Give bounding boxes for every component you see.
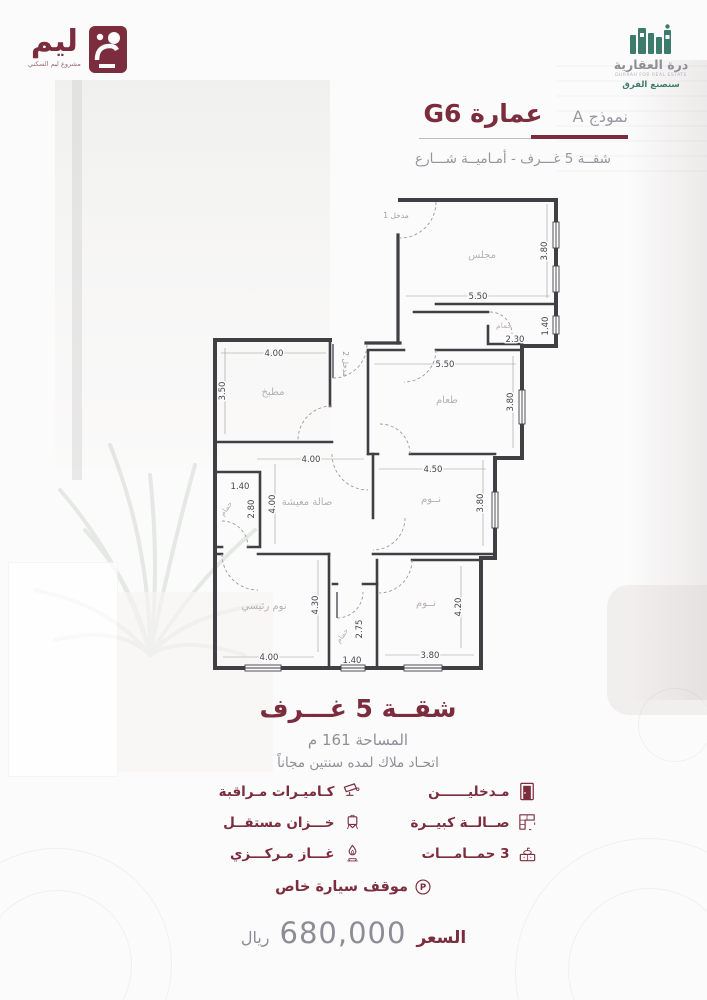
gas-icon (342, 843, 363, 864)
windows (245, 222, 559, 671)
durrah-logo-icon (628, 24, 674, 54)
sofa-icon (517, 812, 538, 833)
dim-living-w: 4.00 (302, 455, 321, 465)
entrance-2-label: مدخل 2 (341, 351, 350, 376)
dim-bed-mid-w: 4.50 (424, 465, 443, 475)
room-label-bath-top: حمام (496, 321, 512, 330)
price-label: السعر (416, 928, 466, 948)
building-title: عمارة G6 (424, 99, 543, 128)
door-leaves (333, 344, 337, 618)
dim-majlis-w: 5.50 (469, 292, 488, 302)
price-currency: ريال (241, 928, 270, 947)
camera-icon (342, 781, 363, 802)
feature-label: صــالــة كبيــرة (411, 815, 510, 831)
exterior-walls (215, 200, 556, 668)
area-text: المساحة 161 م (158, 731, 558, 749)
room-label-bath-bottom: حمام (334, 626, 351, 644)
feature-label: كـاميـرات مـراقبة (219, 784, 335, 800)
background-planter (8, 562, 118, 777)
room-label-bed-mid: نــوم (421, 494, 441, 505)
dimension-lines (221, 204, 550, 657)
floor-plan: 5.50 3.80 2.30 1.40 4.00 3.50 5.50 3.80 … (190, 192, 562, 678)
durrah-brand-name-en: DURRAH FOR REAL ESTATE (615, 73, 687, 78)
room-label-bath-left: حمام (218, 499, 235, 517)
room-label-kitchen: مطبخ (261, 387, 284, 398)
sink-icon (517, 843, 538, 864)
model-label: نموذج A (573, 107, 628, 126)
dim-master-w: 4.00 (260, 653, 279, 663)
feature-label: 3 حمــامـــات (421, 846, 509, 862)
dim-bath-bottom-w: 1.40 (343, 656, 362, 666)
feature-gas: غـــاز مـركـــزي (173, 843, 363, 864)
apartment-subtitle: شقــة 5 غـــرف - أمـاميــة شـــارع (398, 151, 628, 167)
durrah-brand-slogan: سنصنع الفرق (622, 80, 680, 90)
dim-bath-top-w: 2.30 (506, 335, 525, 345)
parking-symbol: P (420, 883, 426, 893)
apartment-title: شقــة 5 غـــرف (158, 694, 558, 723)
poster-page: ليم مشروع ليم السكني درة العقارية (0, 0, 707, 1000)
feature-bathrooms: 3 حمــامـــات (373, 843, 538, 864)
dim-kitchen-w: 4.00 (265, 349, 284, 359)
room-label-majlis: مجلس (468, 250, 496, 261)
dim-master-h: 4.30 (311, 596, 321, 615)
leem-brand: ليم مشروع ليم السكني (28, 26, 127, 73)
feature-hall: صــالــة كبيــرة (373, 812, 538, 833)
dim-bath-top-h: 1.40 (541, 317, 551, 336)
dim-living-h: 4.00 (268, 495, 278, 514)
feature-tank: خـــزان مستقــل (173, 812, 363, 833)
feature-label: مـدخليــــــن (428, 784, 509, 800)
room-labels: مجلس حمام مطبخ طعام صالة معيشة حمام نــو… (218, 211, 513, 645)
feature-label: خـــزان مستقــل (223, 815, 334, 831)
room-label-bed-bottom: نــوم (416, 598, 436, 609)
parking-icon: P (414, 878, 432, 896)
room-label-living: صالة معيشة (282, 497, 333, 508)
dim-majlis-h: 3.80 (540, 242, 550, 261)
dim-dining-w: 5.50 (436, 360, 455, 370)
feature-cameras: كـاميـرات مـراقبة (173, 781, 363, 802)
durrah-brand: درة العقارية DURRAH FOR REAL ESTATE سنصن… (607, 24, 695, 90)
parking-label: موقف سيارة خاص (275, 879, 408, 895)
header-block: عمارة G6 نموذج A شقــة 5 غـــرف - أمـامي… (398, 99, 628, 167)
summary-block: شقــة 5 غـــرف المساحة 161 م اتحـاد ملاك… (158, 694, 558, 771)
feature-entrances: مـدخليــــــن (373, 781, 538, 802)
title-divider (419, 135, 628, 140)
dim-bath-bottom-h: 2.75 (355, 620, 365, 639)
room-label-master: نوم رئيسي (241, 601, 286, 612)
price-block: السعر 680,000 ريال (0, 916, 707, 950)
price-value: 680,000 (280, 916, 407, 950)
dim-bath-left-w: 1.40 (231, 482, 250, 492)
owners-union-note: اتحـاد ملاك لمده سنتين مجاناً (158, 755, 558, 771)
dim-dining-h: 3.80 (506, 393, 516, 412)
dim-bath-left-h: 2.80 (247, 500, 257, 519)
room-label-dining: طعام (436, 395, 458, 406)
leem-brand-name: ليم (31, 26, 78, 58)
features-list: مـدخليــــــن كـاميـرات مـراقبة صــالــة… (160, 781, 550, 864)
durrah-brand-name: درة العقارية (614, 57, 689, 72)
dim-bed-mid-h: 3.80 (476, 494, 486, 513)
dim-bed-bottom-h: 4.20 (454, 598, 464, 617)
parking-feature: P موقف سيارة خاص (0, 878, 707, 896)
leem-logo-icon (89, 26, 127, 73)
door-icon (517, 781, 538, 802)
dim-bed-bottom-w: 3.80 (421, 651, 440, 661)
dim-kitchen-h: 3.50 (218, 382, 228, 401)
entrance-1-label: مدخل 1 (383, 211, 408, 220)
feature-label: غـــاز مـركـــزي (230, 846, 334, 862)
background-ring (638, 688, 707, 762)
tank-icon (342, 812, 363, 833)
leem-brand-tagline: مشروع ليم السكني (28, 60, 81, 68)
